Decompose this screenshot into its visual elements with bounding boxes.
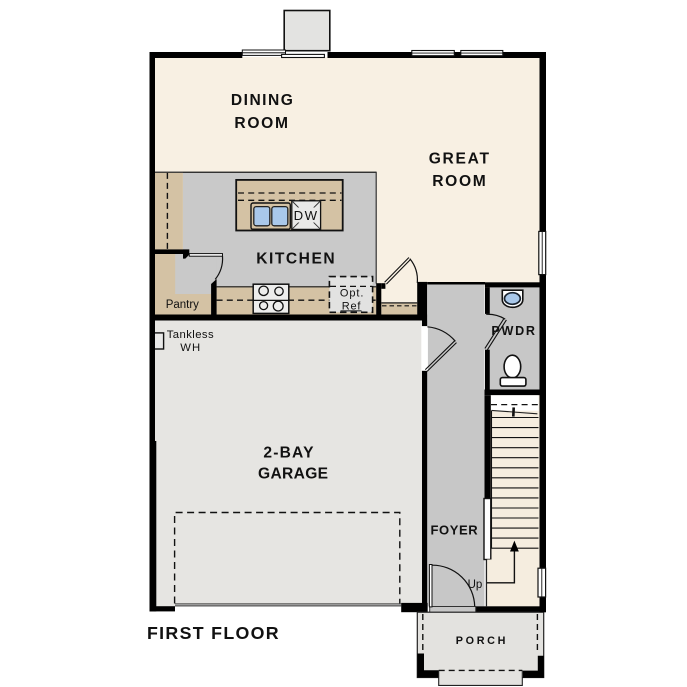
svg-text:DINING: DINING: [231, 92, 294, 109]
svg-text:Tankless: Tankless: [167, 329, 214, 341]
svg-text:GARAGE: GARAGE: [258, 466, 328, 483]
svg-text:Opt.: Opt.: [340, 287, 365, 299]
svg-text:DW: DW: [294, 208, 319, 223]
svg-text:Up: Up: [468, 579, 483, 591]
svg-text:2-BAY: 2-BAY: [263, 444, 314, 461]
svg-text:GREAT: GREAT: [429, 150, 491, 167]
svg-text:ROOM: ROOM: [234, 115, 289, 132]
svg-text:WH: WH: [180, 342, 201, 354]
svg-text:PORCH: PORCH: [456, 635, 508, 647]
svg-text:FOYER: FOYER: [431, 523, 479, 538]
svg-text:FIRST FLOOR: FIRST FLOOR: [147, 623, 280, 643]
svg-text:Pantry: Pantry: [166, 299, 199, 311]
svg-text:KITCHEN: KITCHEN: [256, 250, 336, 267]
svg-text:ROOM: ROOM: [432, 173, 487, 190]
svg-text:PWDR: PWDR: [491, 324, 536, 338]
